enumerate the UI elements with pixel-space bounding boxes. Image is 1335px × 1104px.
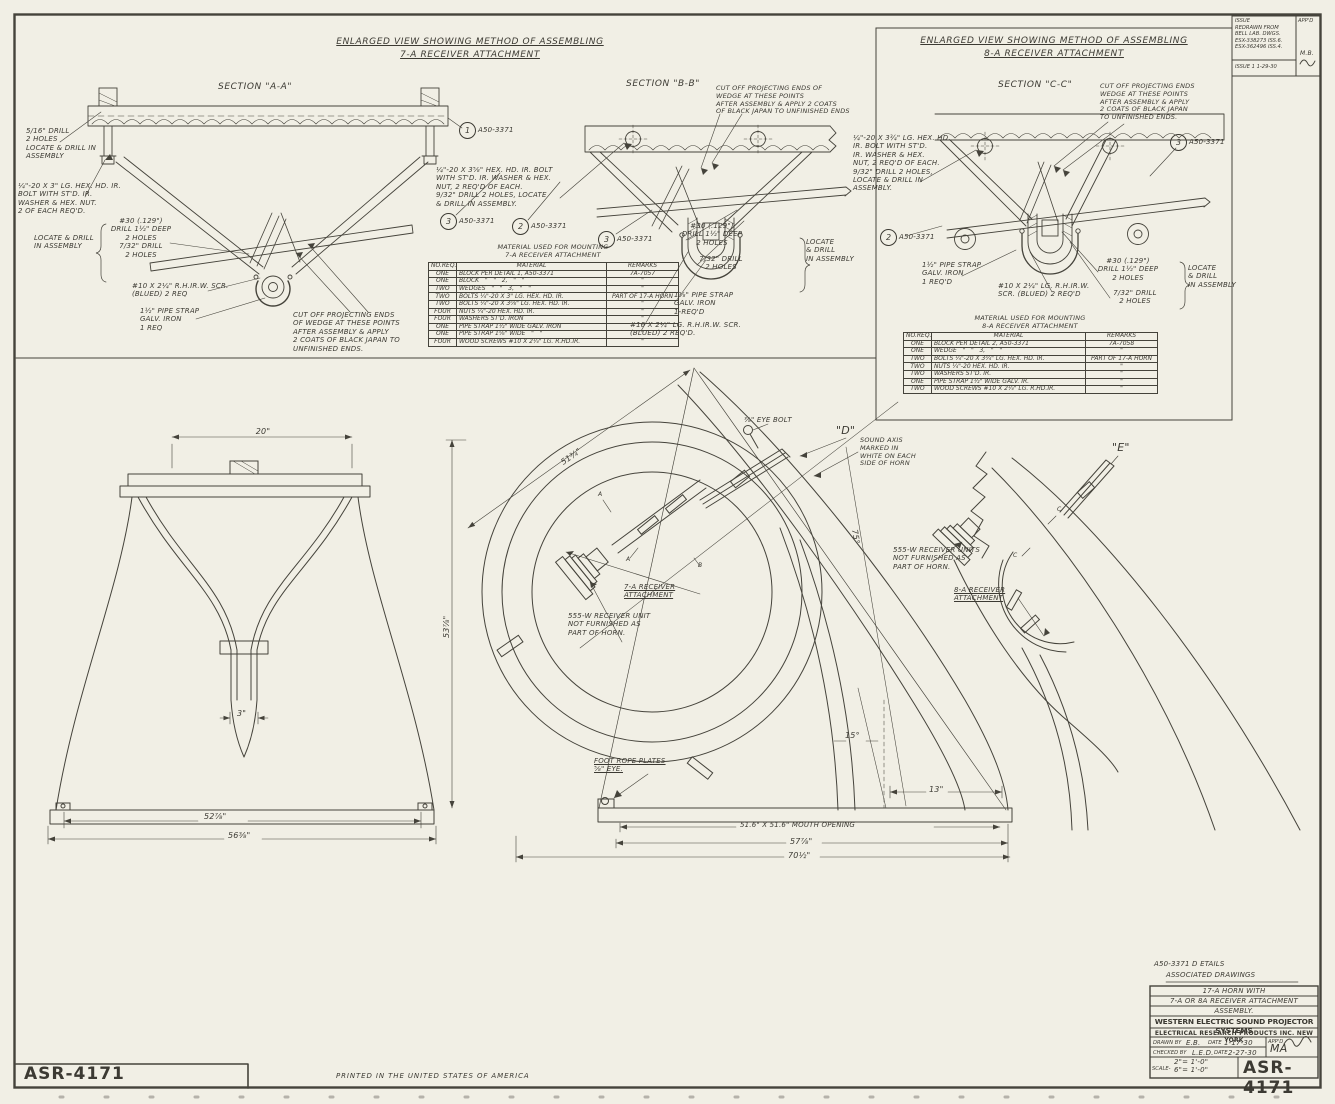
cell: ONE bbox=[904, 340, 932, 348]
note-strap-bb: 1⅝" PIPE STRAP GALV. IRON 1-REQ'D bbox=[674, 291, 756, 316]
cell: BOLTS ¼"-20 X 3" LG. HEX. HD. IR. bbox=[457, 293, 607, 301]
right-view-art bbox=[932, 452, 1300, 830]
cell: " bbox=[1086, 378, 1158, 386]
table-row: FOURWOOD SCREWS #10 X 2¼" LG. R.HD.IR." bbox=[429, 338, 679, 346]
cell: 7A-7057 bbox=[607, 270, 679, 278]
cell: FOUR bbox=[429, 338, 457, 346]
cell: PIPE STRAP 1½" WIDE GALV. IR. bbox=[932, 378, 1086, 386]
checked-by-label: CHECKED BY bbox=[1153, 1050, 1186, 1056]
cell: FOUR bbox=[429, 308, 457, 316]
section-cc-heading: SECTION "C-C" bbox=[998, 80, 1072, 91]
blueprint-sheet: ENLARGED VIEW SHOWING METHOD OF ASSEMBLI… bbox=[0, 0, 1335, 1104]
checked-by-value: L.E.D. bbox=[1192, 1049, 1214, 1057]
balloon-number: 2 bbox=[886, 233, 891, 242]
checked-date-label: DATE bbox=[1214, 1050, 1228, 1056]
note-drill30-cc: #30 (.129") DRILL 1½" DEEP 2 HOLES bbox=[1096, 257, 1160, 282]
cell: WEDGES " " 3, " " bbox=[457, 285, 607, 293]
table-row: TWOWOOD SCREWS #10 X 2¼" LG. R.HD.IR." bbox=[904, 386, 1158, 394]
cell: 7A-7058 bbox=[1086, 340, 1158, 348]
printed-note: PRINTED IN THE UNITED STATES OF AMERICA bbox=[336, 1072, 530, 1080]
balloon-detail-3a: 3 bbox=[440, 213, 457, 230]
table-header-row: NO.REQ. MATERIAL REMARKS bbox=[429, 263, 679, 271]
material-table-8a: NO.REQ. MATERIAL REMARKS ONEBLOCK PER DE… bbox=[903, 332, 1158, 394]
section-e-label: "E" bbox=[1112, 441, 1130, 454]
section-d-label: "D" bbox=[836, 424, 855, 437]
note-locate-aa: LOCATE & DRILL IN ASSEMBLY bbox=[34, 234, 116, 251]
title-block-lines bbox=[16, 982, 1318, 1088]
note-drill732-bb: 7/32" DRILL 2 HOLES bbox=[692, 255, 750, 272]
balloon-number: 3 bbox=[1176, 138, 1181, 147]
balloon-detail-3c: 3 bbox=[1170, 134, 1187, 151]
table-row: ONEPIPE STRAP 1½" WIDE GALV. IRON" bbox=[429, 323, 679, 331]
col-header: MATERIAL bbox=[932, 333, 1086, 341]
dim-mouth-opening: 51.6" X 51.6" MOUTH OPENING bbox=[740, 821, 932, 829]
note-cutoff-cc: CUT OFF PROJECTING ENDS WEDGE AT THESE P… bbox=[1100, 83, 1228, 122]
table-row: FOURNUTS ¼"-20 HEX. HD. IR." bbox=[429, 308, 679, 316]
revision-appd-header: APP'D bbox=[1298, 18, 1313, 24]
material-table-8a-title: MATERIAL USED FOR MOUNTING 8-A RECEIVER … bbox=[903, 315, 1157, 331]
drawn-by-label: DRAWN BY bbox=[1153, 1040, 1181, 1046]
note-bolt-aa: ¼"-20 X 3" LG. HEX. HD. IR. BOLT WITH ST… bbox=[18, 182, 130, 216]
table-row: TWOBOLTS ¼"-20 X 3⅝" LG. HEX. HD. IR." bbox=[429, 300, 679, 308]
cell: ONE bbox=[429, 270, 457, 278]
balloon-detail-1: 1 bbox=[459, 122, 476, 139]
table-row: TWOWASHERS ST'D. IR." bbox=[904, 370, 1158, 378]
cell: WASHERS ST'D. IR. bbox=[932, 370, 1086, 378]
line-art bbox=[0, 0, 1335, 1104]
drawn-by-value: E.B. bbox=[1186, 1039, 1200, 1047]
note-bolt-bb: ¼"-20 X 3⅝" HEX. HD. IR. BOLT WITH ST'D.… bbox=[436, 166, 568, 208]
scale-value: 2"= 1'-0" 6"= 1'-0" bbox=[1174, 1058, 1208, 1075]
cell: ONE bbox=[904, 378, 932, 386]
view7a-title-line2: 7-A RECEIVER ATTACHMENT bbox=[300, 50, 640, 61]
cell: TWO bbox=[429, 285, 457, 293]
cell: PART OF 17-A HORN bbox=[607, 293, 679, 301]
cell: " bbox=[607, 300, 679, 308]
dim-13in: 13" bbox=[929, 785, 943, 795]
balloon-detail-2a: 2 bbox=[512, 218, 529, 235]
cell: TWO bbox=[904, 355, 932, 363]
view7a-title-line1: ENLARGED VIEW SHOWING METHOD OF ASSEMBLI… bbox=[300, 37, 640, 48]
sheet-border bbox=[15, 15, 1322, 1098]
part-ref-2a: A50-3371 bbox=[531, 222, 567, 230]
dim-70in: 70½" bbox=[788, 851, 810, 861]
cell: ONE bbox=[429, 278, 457, 286]
cell: " bbox=[1086, 363, 1158, 371]
checked-date-value: 2-27-30 bbox=[1228, 1049, 1257, 1057]
drawing-number: ASR-4171 bbox=[1243, 1058, 1335, 1099]
front-view-art bbox=[48, 437, 436, 844]
section-letter-a2: A bbox=[626, 556, 630, 563]
part-ref-3a: A50-3371 bbox=[459, 217, 495, 225]
table-row: TWOBOLTS ¼"-20 X 3¾" LG. HEX. HD. IR.PAR… bbox=[904, 355, 1158, 363]
material-table-7a-title: MATERIAL USED FOR MOUNTING 7-A RECEIVER … bbox=[428, 244, 678, 260]
revision-notes: ISSUE REDRAWN FROM BELL LAB. DWGS. ESX-3… bbox=[1235, 18, 1293, 51]
cell: ONE bbox=[904, 348, 932, 356]
callout-7a-attachment: 7-A RECEIVER ATTACHMENT bbox=[624, 583, 708, 600]
section-bb-heading: SECTION "B-B" bbox=[626, 79, 700, 90]
note-receiver-unit-7a: 555-W RECEIVER UNIT NOT FURNISHED AS PAR… bbox=[568, 612, 680, 637]
cell: " bbox=[1086, 386, 1158, 394]
material-table-7a: NO.REQ. MATERIAL REMARKS ONEBLOCK PER DE… bbox=[428, 262, 679, 347]
scale-label: SCALE- bbox=[1152, 1066, 1171, 1072]
table-row: TWOWEDGES " " 3, " "" bbox=[429, 285, 679, 293]
note-drill732-cc: 7/32" DRILL 2 HOLES bbox=[1106, 289, 1164, 306]
cell: " bbox=[607, 308, 679, 316]
col-header: NO.REQ. bbox=[904, 333, 932, 341]
balloon-number: 2 bbox=[518, 222, 523, 231]
table-row: ONEBLOCK PER DETAIL 2, A50-33717A-7058 bbox=[904, 340, 1158, 348]
note-screw-cc: #10 X 2¼" LG. R.H.IR.W. SCR. (BLUED) 2 R… bbox=[998, 282, 1110, 299]
col-header: MATERIAL bbox=[457, 263, 607, 271]
assoc-drawings-line2: ASSOCIATED DRAWINGS bbox=[1166, 971, 1255, 979]
note-strap-aa: 1½" PIPE STRAP GALV. IRON 1 REQ bbox=[140, 307, 222, 332]
cell: WOOD SCREWS #10 X 2¼" LG. R.HD.IR. bbox=[457, 338, 607, 346]
note-drill30-bb: #30 (.129") DRILL 1½" DEEP 2 HOLES bbox=[678, 222, 746, 247]
part-ref-1: A50-3371 bbox=[478, 126, 514, 134]
section-letter-c1: C bbox=[1057, 506, 1061, 513]
cell: ONE bbox=[429, 331, 457, 339]
part-ref-3c: A50-3371 bbox=[1189, 138, 1225, 146]
dim-20in: 20" bbox=[248, 427, 278, 437]
cell: " bbox=[607, 331, 679, 339]
cell: BOLTS ¼"-20 X 3¾" LG. HEX. HD. IR. bbox=[932, 355, 1086, 363]
table-row: ONEPIPE STRAP 1⅝" WIDE " "" bbox=[429, 331, 679, 339]
title-row-1: 17-A HORN WITH bbox=[1150, 987, 1318, 995]
revision-issue-line: ISSUE 1 1-29-30 bbox=[1235, 64, 1277, 70]
note-receiver-unit-8a: 555-W RECEIVER UNITS NOT FURNISHED AS PA… bbox=[893, 546, 1007, 571]
balloon-number: 3 bbox=[446, 217, 451, 226]
note-bolt-cc: ¼"-20 X 3¾" LG. HEX. HD. IR. BOLT WITH S… bbox=[853, 134, 953, 193]
cell: TWO bbox=[904, 363, 932, 371]
note-cutoff-bb: CUT OFF PROJECTING ENDS OF WEDGE AT THES… bbox=[716, 85, 868, 116]
dim-3in: 3" bbox=[237, 709, 246, 719]
note-locate-bb: LOCATE & DRILL IN ASSEMBLY bbox=[806, 238, 864, 263]
cell: WEDGE " " 3, " " bbox=[932, 348, 1086, 356]
dim-57in: 57⅞" bbox=[790, 837, 812, 847]
cell: " bbox=[607, 316, 679, 324]
col-header: NO.REQ. bbox=[429, 263, 457, 271]
dim-52in: 52⅞" bbox=[204, 812, 226, 822]
table-row: TWONUTS ¼"-20 HEX. HD. IR." bbox=[904, 363, 1158, 371]
dim-15deg: 15° bbox=[845, 731, 860, 741]
cell: BLOCK PER DETAIL 2, A50-3371 bbox=[932, 340, 1086, 348]
note-locate-cc: LOCATE & DRILL IN ASSEMBLY bbox=[1188, 264, 1248, 289]
cell: TWO bbox=[429, 293, 457, 301]
cell: NUTS ¼"-20 HEX. HD. IR. bbox=[457, 308, 607, 316]
cell: " bbox=[607, 323, 679, 331]
drawn-date-value: 1-17-30 bbox=[1224, 1039, 1253, 1047]
callout-8a-attachment: 8-A RECEIVER ATTACHMENT bbox=[954, 586, 1038, 603]
view8a-title-line1: ENLARGED VIEW SHOWING METHOD OF ASSEMBLI… bbox=[880, 36, 1228, 47]
note-cutoff-aa: CUT OFF PROJECTING ENDS OF WEDGE AT THES… bbox=[293, 311, 435, 353]
view8a-title-line2: 8-A RECEIVER ATTACHMENT bbox=[880, 49, 1228, 60]
table-row: TWOBOLTS ¼"-20 X 3" LG. HEX. HD. IR.PART… bbox=[429, 293, 679, 301]
cell: " bbox=[607, 278, 679, 286]
appd-signature: MA bbox=[1270, 1042, 1287, 1055]
callout-foot-rope-plates: FOOT ROPE PLATES ⅝" EYE. bbox=[594, 757, 688, 774]
note-sound-axis: SOUND AXIS MARKED IN WHITE ON EACH SIDE … bbox=[860, 437, 932, 468]
table-row: FOURWASHERS ST'D. IRON" bbox=[429, 316, 679, 324]
cell: BLOCK " " 2, " " bbox=[457, 278, 607, 286]
cell: TWO bbox=[429, 300, 457, 308]
section-aa-heading: SECTION "A-A" bbox=[218, 82, 292, 93]
table-row: ONEBLOCK PER DETAIL 1, A50-33717A-7057 bbox=[429, 270, 679, 278]
cell: " bbox=[607, 338, 679, 346]
note-eye-bolt: ⅜" EYE BOLT bbox=[744, 416, 792, 424]
cell: PART OF 17-A HORN bbox=[1086, 355, 1158, 363]
assoc-drawings-line1: A50-3371 D ETAILS bbox=[1154, 960, 1225, 968]
col-header: REMARKS bbox=[1086, 333, 1158, 341]
table-row: ONEWEDGE " " 3, " "" bbox=[904, 348, 1158, 356]
cell: TWO bbox=[904, 370, 932, 378]
part-ref-3b: A50-3371 bbox=[617, 235, 653, 243]
cell: WASHERS ST'D. IRON bbox=[457, 316, 607, 324]
section-letter-b: B bbox=[698, 562, 702, 569]
cell: FOUR bbox=[429, 316, 457, 324]
table-header-row: NO.REQ. MATERIAL REMARKS bbox=[904, 333, 1158, 341]
table-row: ONEBLOCK " " 2, " "" bbox=[429, 278, 679, 286]
title-row-2: 7-A OR 8A RECEIVER ATTACHMENT bbox=[1150, 997, 1318, 1005]
cell: ONE bbox=[429, 323, 457, 331]
section-letter-c2: C bbox=[1013, 552, 1017, 559]
col-header: REMARKS bbox=[607, 263, 679, 271]
cell: TWO bbox=[904, 386, 932, 394]
balloon-number: 1 bbox=[465, 126, 470, 135]
cell: PIPE STRAP 1½" WIDE GALV. IRON bbox=[457, 323, 607, 331]
dim-56in: 56⅜" bbox=[228, 831, 250, 841]
note-drill30-aa: #30 (.129") DRILL 1½" DEEP 2 HOLES 7/32"… bbox=[108, 217, 174, 259]
cell: " bbox=[1086, 370, 1158, 378]
note-drill-aa: 5/16" DRILL 2 HOLES LOCATE & DRILL IN AS… bbox=[26, 127, 118, 161]
drawn-date-label: DATE bbox=[1208, 1040, 1222, 1046]
revision-initials: M.B. bbox=[1300, 50, 1314, 57]
balloon-detail-2c: 2 bbox=[880, 229, 897, 246]
note-screw-aa: #10 X 2¼" R.H.IR.W. SCR. (BLUED) 2 REQ bbox=[132, 282, 244, 299]
table-row: ONEPIPE STRAP 1½" WIDE GALV. IR." bbox=[904, 378, 1158, 386]
cell: " bbox=[1086, 348, 1158, 356]
cell: PIPE STRAP 1⅝" WIDE " " bbox=[457, 331, 607, 339]
cell: NUTS ¼"-20 HEX. HD. IR. bbox=[932, 363, 1086, 371]
cell: BOLTS ¼"-20 X 3⅝" LG. HEX. HD. IR. bbox=[457, 300, 607, 308]
cell: " bbox=[607, 285, 679, 293]
cell: WOOD SCREWS #10 X 2¼" LG. R.HD.IR. bbox=[932, 386, 1086, 394]
note-strap-cc: 1½" PIPE STRAP GALV. IRON 1 REQ'D bbox=[922, 261, 1004, 286]
part-ref-2c: A50-3371 bbox=[899, 233, 935, 241]
dim-53in: 53⅞" bbox=[442, 616, 452, 638]
section-letter-a1: A bbox=[598, 491, 602, 498]
sheet-number-corner: ASR-4171 bbox=[24, 1064, 125, 1084]
cell: BLOCK PER DETAIL 1, A50-3371 bbox=[457, 270, 607, 278]
title-row-3: ASSEMBLY. bbox=[1150, 1007, 1318, 1015]
